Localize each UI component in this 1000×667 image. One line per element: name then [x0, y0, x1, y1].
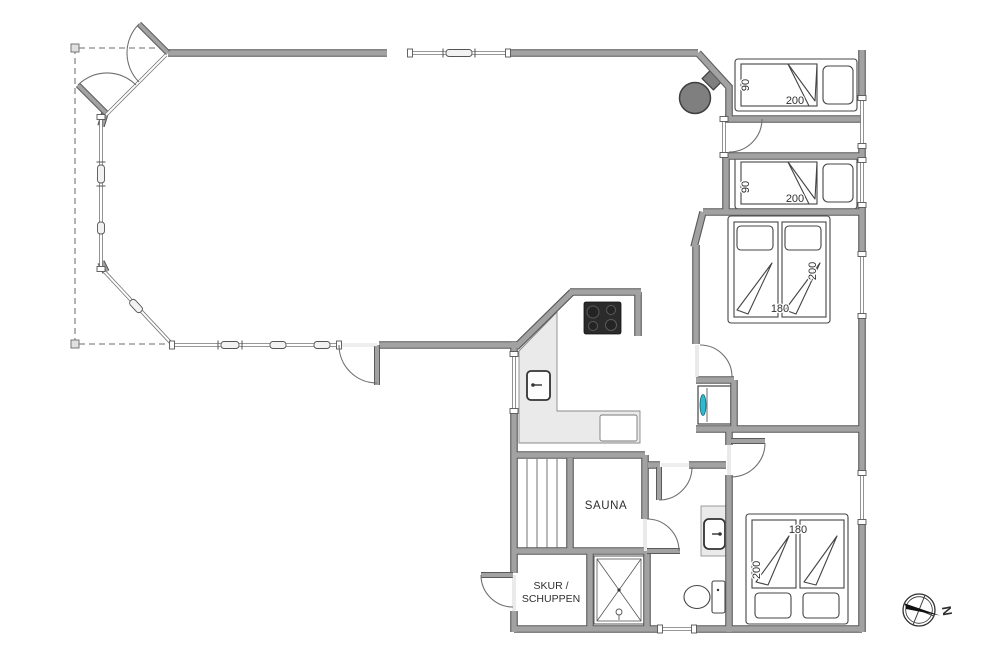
shower	[594, 556, 644, 624]
stair-treads	[527, 459, 557, 549]
terrace-post	[71, 340, 79, 348]
bed2-length-label: 200	[786, 193, 804, 205]
double-bed-middle-length-label: 200	[807, 262, 819, 280]
sauna-label: SAUNA	[585, 500, 628, 512]
floorplan-page: N SAUNA SKUR / SCHUPPEN 90 200 90 200 18…	[0, 0, 1000, 667]
toilet	[684, 581, 725, 613]
bed2-width-label: 90	[740, 181, 752, 193]
double-bed-bottom-length-label: 200	[751, 561, 763, 579]
pillow	[737, 226, 773, 250]
pillow	[785, 226, 821, 250]
pillow	[803, 593, 839, 618]
terrace-post	[71, 44, 79, 52]
window-mullions	[97, 49, 476, 350]
shed-label-line2: SCHUPPEN	[522, 593, 580, 605]
pillow	[823, 66, 853, 104]
shed-label-line1: SKUR /	[533, 580, 568, 592]
compass-north-label: N	[939, 605, 955, 617]
kitchen-sink	[527, 371, 550, 400]
floorplan-drawing: N SAUNA SKUR / SCHUPPEN 90 200 90 200 18…	[0, 0, 1000, 667]
washing-machine	[698, 386, 731, 424]
double-bed-bottom-width-label: 180	[789, 524, 807, 536]
pillow	[823, 164, 853, 202]
double-bed-middle-width-label: 180	[771, 303, 789, 315]
bed1-length-label: 200	[786, 95, 804, 107]
bed1-width-label: 90	[740, 79, 752, 91]
door-swing-arcs	[78, 24, 765, 607]
under-counter-appliance	[600, 415, 637, 441]
compass: N	[898, 589, 955, 631]
door-leaves	[78, 24, 765, 575]
bathroom-sink	[701, 506, 728, 556]
cooktop	[584, 302, 621, 334]
pillow	[755, 593, 791, 618]
door-leaf-outline	[78, 24, 765, 575]
